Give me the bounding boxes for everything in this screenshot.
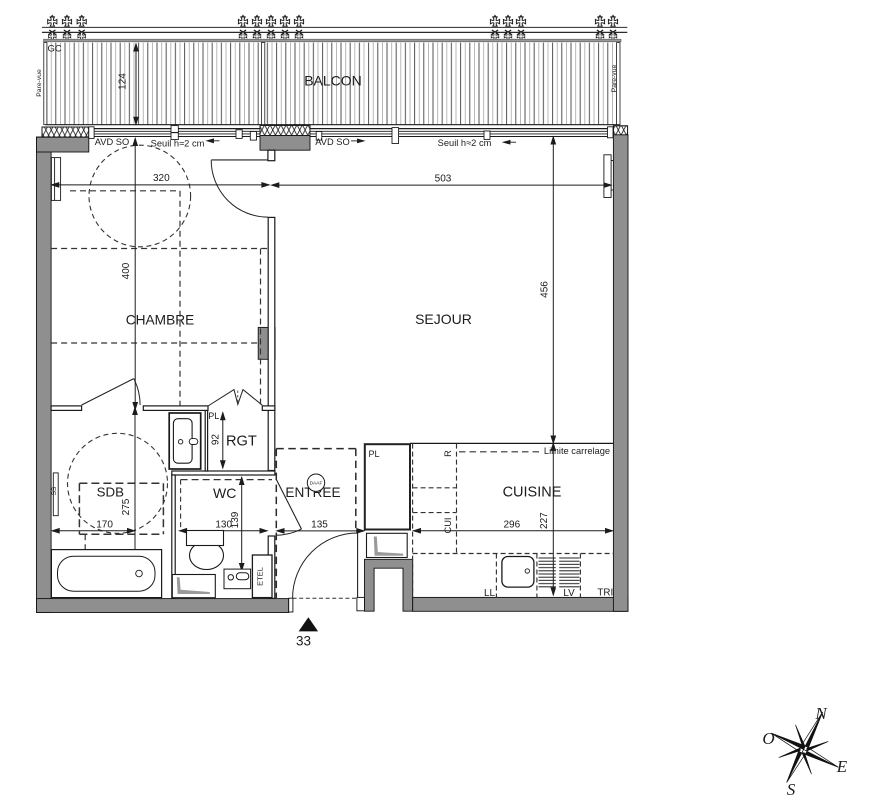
svg-text:320: 320 bbox=[153, 173, 170, 184]
svg-text:Pare-vue: Pare-vue bbox=[36, 69, 43, 97]
svg-text:O: O bbox=[762, 729, 774, 748]
svg-text:170: 170 bbox=[96, 520, 113, 531]
svg-text:Pare-vue: Pare-vue bbox=[611, 64, 618, 92]
svg-text:139: 139 bbox=[230, 511, 241, 528]
svg-text:RGT: RGT bbox=[226, 434, 257, 450]
svg-text:PL: PL bbox=[369, 449, 380, 459]
svg-text:PL: PL bbox=[208, 411, 219, 421]
svg-text:135: 135 bbox=[311, 520, 328, 531]
svg-text:WC: WC bbox=[213, 485, 236, 501]
svg-text:275: 275 bbox=[121, 498, 132, 515]
svg-text:456: 456 bbox=[540, 281, 551, 298]
svg-text:LV: LV bbox=[563, 588, 575, 599]
svg-text:CUISINE: CUISINE bbox=[503, 484, 562, 500]
svg-text:R: R bbox=[443, 450, 453, 457]
svg-text:ETEL: ETEL bbox=[256, 567, 265, 586]
svg-text:400: 400 bbox=[121, 262, 132, 279]
svg-text:GC: GC bbox=[48, 44, 62, 55]
svg-text:Seuil h≈2 cm: Seuil h≈2 cm bbox=[438, 138, 492, 148]
svg-text:LL: LL bbox=[484, 588, 495, 599]
svg-text:503: 503 bbox=[435, 174, 452, 185]
svg-text:Limite carrelage: Limite carrelage bbox=[544, 446, 610, 456]
svg-text:SDB: SDB bbox=[97, 485, 124, 500]
svg-text:296: 296 bbox=[503, 520, 520, 531]
svg-text:124: 124 bbox=[118, 73, 129, 90]
svg-text:227: 227 bbox=[539, 512, 550, 529]
svg-text:92: 92 bbox=[211, 434, 222, 446]
svg-text:BALCON: BALCON bbox=[304, 73, 362, 89]
svg-text:AVD SO: AVD SO bbox=[95, 137, 129, 147]
svg-text:DAAF: DAAF bbox=[310, 481, 323, 487]
svg-text:SEJOUR: SEJOUR bbox=[415, 311, 472, 327]
svg-text:SS: SS bbox=[51, 486, 58, 495]
svg-text:TRI: TRI bbox=[597, 588, 613, 599]
svg-text:CHAMBRE: CHAMBRE bbox=[126, 312, 194, 327]
svg-text:AVD SO: AVD SO bbox=[315, 137, 349, 147]
svg-text:N: N bbox=[814, 704, 828, 723]
svg-text:E: E bbox=[836, 757, 848, 776]
svg-text:33: 33 bbox=[296, 634, 311, 649]
svg-text:S: S bbox=[787, 780, 796, 799]
svg-text:Seuil h≈2 cm: Seuil h≈2 cm bbox=[151, 139, 205, 149]
